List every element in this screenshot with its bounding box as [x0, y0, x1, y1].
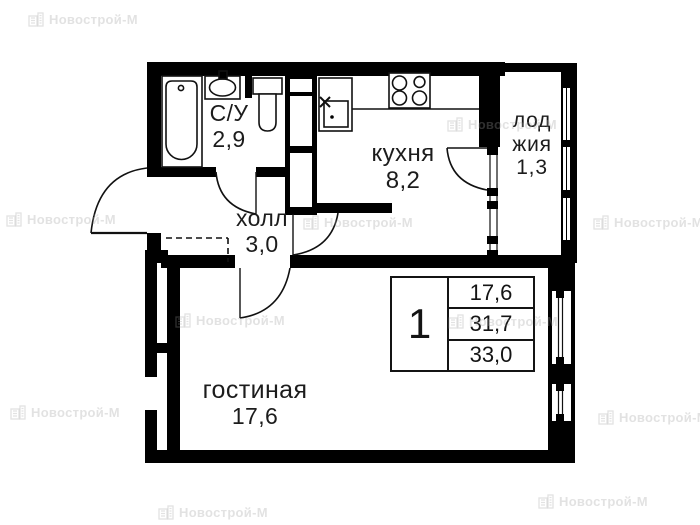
builder-logo-icon: [593, 215, 609, 230]
living-room-name: гостиная: [176, 376, 334, 404]
label-kitchen: кухня 8,2: [356, 141, 450, 195]
kitchen-name: кухня: [356, 141, 450, 168]
builder-logo-icon: [447, 117, 463, 132]
watermark: Новострой-М: [598, 410, 700, 425]
builder-logo-icon: [448, 314, 464, 329]
floor-plan: С/У 2,9 холл 3,0 кухня 8,2 лод жия 1,3 г…: [0, 0, 700, 525]
watermark-text: Новострой-М: [49, 12, 138, 27]
living-room-door: [240, 268, 290, 318]
watermark: Новострой-М: [28, 12, 138, 27]
builder-logo-icon: [538, 494, 554, 509]
hall-name: холл: [216, 206, 308, 232]
watermark: Новострой-М: [593, 215, 700, 230]
watermark-text: Новострой-М: [559, 494, 648, 509]
bathroom-area: 2,9: [183, 127, 275, 153]
builder-logo-icon: [6, 212, 22, 227]
builder-logo-icon: [158, 505, 174, 520]
watermark: Новострой-М: [158, 505, 268, 520]
watermark: Новострой-М: [10, 405, 120, 420]
watermark: Новострой-М: [303, 215, 413, 230]
loggia-window: [563, 88, 570, 240]
builder-logo-icon: [175, 313, 191, 328]
watermark: Новострой-М: [447, 117, 557, 132]
living-area-value: 17,6: [449, 278, 533, 309]
watermark: Новострой-М: [175, 313, 285, 328]
watermark-text: Новострой-М: [27, 212, 116, 227]
ventilation-shafts: [290, 79, 312, 207]
builder-logo-icon: [28, 12, 44, 27]
watermark-text: Новострой-М: [614, 215, 700, 230]
watermark-text: Новострой-М: [324, 215, 413, 230]
label-living-room: гостиная 17,6: [176, 376, 334, 430]
watermark-text: Новострой-М: [196, 313, 285, 328]
loggia-area: 1,3: [502, 156, 562, 180]
label-hall: холл 3,0: [216, 206, 308, 258]
living-room-area: 17,6: [176, 404, 334, 430]
living-room-windows: [552, 291, 571, 421]
floor-plan-graphics: [0, 0, 700, 525]
stove: [389, 73, 430, 108]
kitchen-area: 8,2: [356, 168, 450, 195]
hall-area: 3,0: [216, 232, 308, 258]
total-area-value: 33,0: [449, 341, 533, 370]
builder-logo-icon: [10, 405, 26, 420]
watermark: Новострой-М: [538, 494, 648, 509]
rooms-count: 1: [392, 278, 449, 370]
bathroom-name: С/У: [183, 101, 275, 127]
watermark-text: Новострой-М: [469, 314, 558, 329]
watermark: Новострой-М: [6, 212, 116, 227]
kitchen-sink: [319, 78, 352, 131]
builder-logo-icon: [598, 410, 614, 425]
watermark-text: Новострой-М: [468, 117, 557, 132]
watermark: Новострой-М: [448, 314, 558, 329]
balcony-block-glazing: [487, 147, 498, 258]
watermark-text: Новострой-М: [179, 505, 268, 520]
loggia-door: [447, 148, 487, 190]
builder-logo-icon: [303, 215, 319, 230]
label-bathroom: С/У 2,9: [183, 101, 275, 153]
watermark-text: Новострой-М: [619, 410, 700, 425]
loggia-name-line2: жия: [502, 133, 562, 157]
watermark-text: Новострой-М: [31, 405, 120, 420]
